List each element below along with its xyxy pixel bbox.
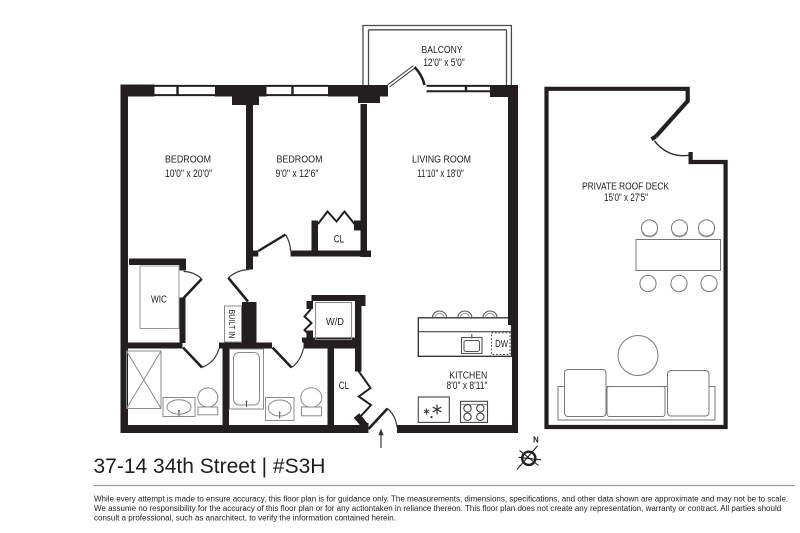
svg-text:BUILT IN: BUILT IN [227,310,236,339]
svg-text:CL: CL [339,380,350,392]
svg-text:We assume no responsibility fo: We assume no responsibility for the accu… [94,504,781,513]
svg-text:8'0" x 8'11": 8'0" x 8'11" [447,380,488,392]
svg-text:PRIVATE ROOF DECK: PRIVATE ROOF DECK [582,180,669,192]
svg-text:DW: DW [495,338,508,350]
svg-text:BEDROOM: BEDROOM [277,153,323,165]
svg-text:BALCONY: BALCONY [422,44,463,56]
svg-text:WIC: WIC [151,294,167,306]
svg-text:37-14 34th Street | #S3H: 37-14 34th Street | #S3H [94,455,326,478]
svg-text:CL: CL [334,234,345,246]
svg-text:10'0" x 20'0": 10'0" x 20'0" [165,168,212,180]
svg-text:12'0" x 5'0": 12'0" x 5'0" [423,57,465,69]
svg-text:W/D: W/D [326,316,344,328]
svg-text:BEDROOM: BEDROOM [165,153,211,165]
svg-text:consult a professional, such a: consult a professional, such as anarchit… [94,514,396,523]
svg-text:While every attempt is made to: While every attempt is made to ensure ac… [94,495,788,504]
svg-text:LIVING ROOM: LIVING ROOM [412,153,471,165]
svg-text:11'10" x 18'0": 11'10" x 18'0" [417,168,464,180]
svg-text:9'0" x 12'6": 9'0" x 12'6" [276,168,319,180]
svg-text:N: N [533,436,539,445]
svg-text:15'0" x 27'5": 15'0" x 27'5" [604,192,648,204]
